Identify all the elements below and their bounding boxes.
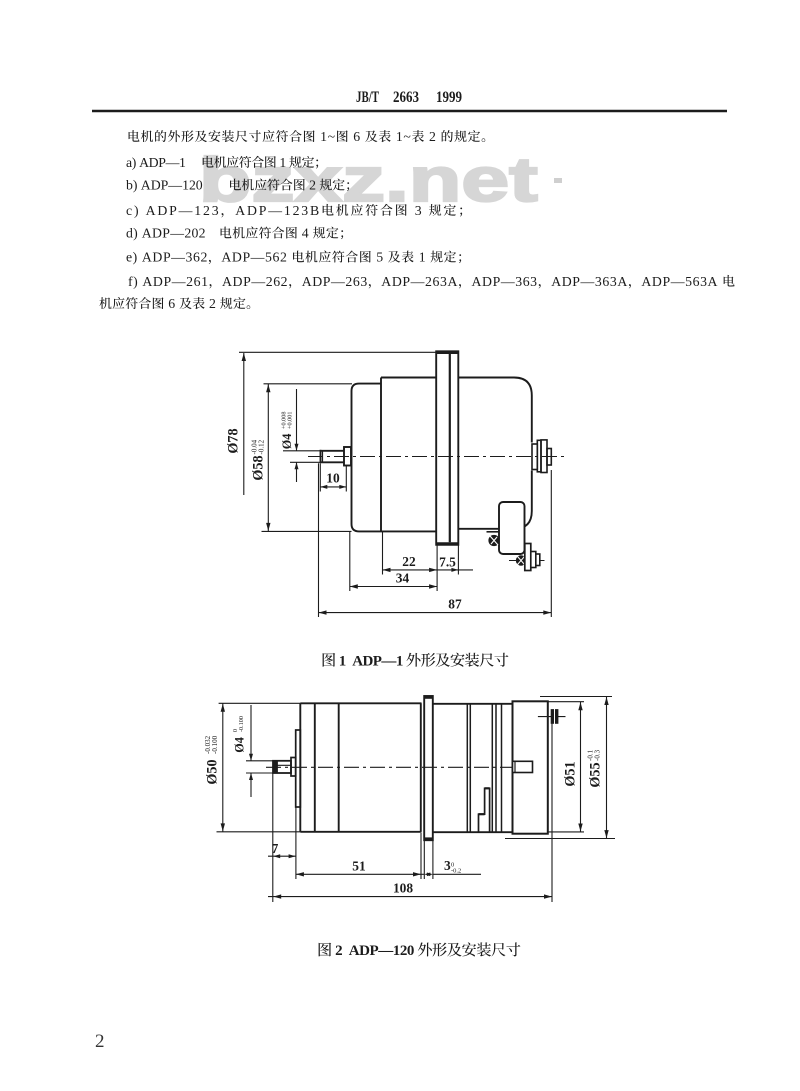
svg-text:3: 3 [415, 203, 424, 218]
svg-text:7: 7 [272, 841, 279, 856]
svg-text:e): e) [126, 250, 138, 266]
svg-text:-0.2: -0.2 [451, 868, 461, 875]
svg-text:7.5: 7.5 [439, 555, 456, 570]
svg-text:108: 108 [393, 881, 413, 896]
svg-text:ADP—1: ADP—1 [352, 654, 403, 670]
svg-text:1: 1 [339, 654, 346, 670]
svg-text:ADP—263: ADP—263 [302, 274, 368, 289]
svg-text:34: 34 [396, 571, 410, 586]
svg-text:2: 2 [335, 943, 342, 959]
svg-text:ADP—362: ADP—362 [142, 250, 208, 265]
svg-text:-0.3: -0.3 [594, 749, 602, 761]
svg-text:Ø58: Ø58 [251, 455, 267, 480]
svg-text:a): a) [126, 155, 136, 171]
svg-text:Ø4: Ø4 [233, 737, 247, 753]
svg-text:-0.100: -0.100 [238, 716, 245, 732]
svg-text:87: 87 [448, 597, 462, 612]
svg-text:2663: 2663 [393, 89, 419, 106]
svg-text:ADP—363A: ADP—363A [551, 274, 628, 289]
svg-text:-0.100: -0.100 [211, 735, 219, 754]
svg-text:ADP—263A: ADP—263A [381, 274, 458, 289]
svg-text:2: 2 [429, 129, 437, 144]
svg-text:+0.001: +0.001 [287, 412, 294, 429]
svg-text:1~: 1~ [320, 129, 336, 144]
svg-text:ADP—563A: ADP—563A [641, 274, 718, 289]
svg-text:Ø51: Ø51 [563, 761, 579, 786]
svg-text:ADP—123B: ADP—123B [235, 203, 321, 218]
svg-text:6: 6 [353, 129, 361, 144]
svg-text:Ø78: Ø78 [226, 428, 242, 453]
svg-text:1: 1 [419, 250, 426, 265]
svg-text:ADP—202: ADP—202 [142, 226, 206, 241]
svg-text:ADP—123: ADP—123 [146, 203, 221, 218]
svg-text:51: 51 [352, 858, 365, 873]
svg-text:22: 22 [402, 554, 416, 569]
svg-text:2: 2 [309, 178, 316, 193]
svg-text:ADP—120: ADP—120 [349, 943, 414, 959]
svg-text:1: 1 [279, 155, 286, 170]
svg-text:ADP—262: ADP—262 [222, 274, 288, 289]
svg-text:10: 10 [326, 471, 340, 486]
svg-text:-0.12: -0.12 [258, 439, 266, 454]
svg-text:JB/T: JB/T [356, 89, 379, 106]
svg-text:1~: 1~ [396, 129, 412, 144]
svg-text:ADP—120: ADP—120 [141, 178, 203, 193]
svg-text:d): d) [126, 226, 138, 242]
svg-text:6: 6 [168, 296, 175, 311]
svg-text:3: 3 [444, 858, 451, 873]
svg-text:f): f) [128, 274, 138, 290]
svg-text:ADP—1: ADP—1 [139, 155, 186, 170]
svg-text:c): c) [126, 203, 140, 219]
svg-text:Ø50: Ø50 [205, 759, 221, 784]
svg-text:ADP—261: ADP—261 [142, 274, 208, 289]
svg-text:ADP—363: ADP—363 [472, 274, 538, 289]
svg-text:b): b) [126, 178, 137, 194]
svg-text:4: 4 [302, 226, 309, 241]
svg-text:2: 2 [95, 1031, 105, 1052]
svg-text:1999: 1999 [436, 89, 462, 106]
svg-text:Ø4: Ø4 [280, 434, 294, 450]
svg-text:2: 2 [209, 296, 216, 311]
svg-text:Ø55: Ø55 [588, 762, 604, 787]
svg-text:5: 5 [376, 250, 383, 265]
svg-text:ADP—562: ADP—562 [221, 250, 287, 265]
